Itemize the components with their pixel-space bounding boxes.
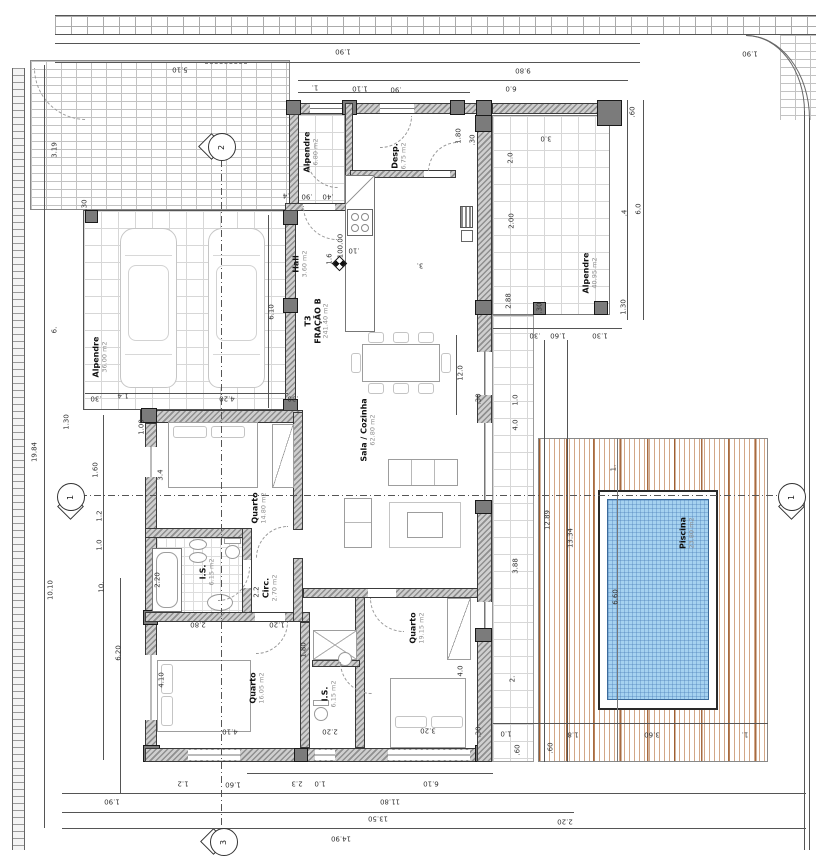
dimension-label: 1.00 (139, 419, 146, 435)
dimension-label: 1.0 (513, 394, 520, 405)
dimension-label: 6.0 (505, 85, 516, 92)
room-area: 2.70 m2 (271, 574, 279, 601)
dimension-label: .90 (301, 193, 312, 200)
dimension-label: 12.89 (545, 510, 552, 530)
dimension-label: .40 (322, 193, 333, 200)
room-label-quarto: Quarto19.15 m2 (408, 612, 425, 643)
dimension-label: 6.10 (269, 304, 276, 320)
dimension-label: 1.60 (225, 781, 241, 788)
dimension-label: 1.60 (550, 332, 566, 339)
dimension-label: 100.00 (338, 234, 345, 259)
section-marker-number: 2 (218, 144, 227, 149)
dimension-label: 1.20 (269, 621, 285, 628)
room-area: 6.80 m2 (312, 132, 320, 173)
room-label-sala-cozinha: Sala / Cozinha62.80 m2 (359, 398, 376, 461)
dimension-label: 6.60 (613, 589, 620, 605)
room-area: 6.15 m2 (330, 680, 338, 707)
room-area: 241.40 m2 (323, 298, 331, 344)
dimension-label: 10.10 (48, 580, 55, 600)
section-marker-number: 1 (788, 494, 797, 499)
dimension-label: .60 (515, 744, 522, 755)
dimension-label: 6.0 (636, 203, 643, 214)
dimension-label: .30 (287, 395, 298, 402)
dimension-label: 1.30 (592, 332, 608, 339)
room-label-hall: Hall3.60 m2 (291, 250, 308, 277)
dimension-label: .10 (348, 247, 359, 254)
room-label-i-s-: I.S.6.15 m2 (198, 558, 215, 585)
dimension-label: 1.90 (742, 50, 758, 57)
dimension-label: 2.00 (509, 213, 516, 229)
room-area: 36.00 m2 (101, 337, 109, 378)
marker-layer: 2311 (0, 0, 816, 856)
dimension-label: 6. (52, 327, 59, 334)
room-area: 40.95 m2 (591, 253, 599, 294)
floor-plan: 5.101.901.909.806.01.1.10.90.603.02.02.0… (0, 0, 816, 856)
dimension-label: 5.10 (172, 66, 188, 73)
dimension-label: 2.20 (322, 728, 338, 735)
dimension-label: .4 (283, 192, 290, 199)
dimension-label: .30 (82, 199, 89, 210)
room-name: T3 FRAÇÃO B (304, 298, 323, 344)
dimension-label: 1.2 (177, 780, 188, 787)
dimension-label: .90 (390, 86, 401, 93)
room-area: 62.80 m2 (369, 398, 377, 461)
room-area: 14.80 m2 (260, 492, 268, 523)
dimension-label: 4.20 (219, 395, 235, 402)
dimension-label: .4 (622, 210, 629, 217)
dimension-label: 1.80 (301, 642, 308, 658)
dimension-label: 4.10 (159, 672, 166, 688)
dimension-label: .30 (476, 726, 483, 737)
dimension-label: 1.2 (97, 510, 104, 521)
room-area: 6.15 m2 (208, 558, 216, 585)
section-marker: 1 (57, 483, 85, 511)
dimension-label: 1.80 (456, 128, 463, 144)
dimension-label: 2.0 (508, 152, 515, 163)
dimension-label: 11.80 (380, 798, 400, 805)
dimension-label: 3.20 (420, 727, 436, 734)
dimension-label: 6.10 (423, 780, 439, 787)
room-area: 19.15 m2 (418, 612, 426, 643)
dimension-label: .30 (90, 395, 101, 402)
dimension-label: 10. (99, 581, 106, 592)
dimension-label: 14.90 (331, 835, 351, 842)
dimension-label: 6.20 (116, 645, 123, 661)
room-area: 3.60 m2 (301, 250, 309, 277)
dimension-label: 1.30 (64, 414, 71, 430)
dimension-label: 1. (312, 84, 319, 91)
dimension-label: 2.2 (254, 586, 261, 597)
dimension-label: .60 (548, 742, 555, 753)
dimension-label: 2.20 (557, 818, 573, 825)
dimension-label: 1. (611, 465, 618, 472)
dimension-label: 1.4 (117, 392, 128, 399)
dimension-label: 1.90 (335, 48, 351, 55)
dimension-label: 1.0 (97, 539, 104, 550)
dimension-label: 1.8 (567, 731, 578, 738)
room-label-quarto: Quarto16.05 m2 (248, 672, 265, 703)
dimension-label: 4.0 (513, 419, 520, 430)
section-marker: 1 (778, 483, 806, 511)
dimension-label: 1.0 (314, 780, 325, 787)
dimension-label: 2.80 (190, 621, 206, 628)
dimension-label: 13.34 (568, 528, 575, 548)
section-marker-number: 1 (67, 494, 76, 499)
dimension-label: 3. (417, 262, 424, 269)
dimension-label: .30 (476, 393, 483, 404)
dimension-label: .60 (630, 106, 637, 117)
room-label-circ-: Circ.2.70 m2 (261, 574, 278, 601)
room-area: 23.80 m2 (688, 517, 696, 549)
dimension-label: .30 (529, 332, 540, 339)
dimension-label: 3.0 (540, 135, 551, 142)
dimension-label: 2.88 (506, 293, 513, 309)
dimension-label: 3.60 (644, 731, 660, 738)
dimension-label: 1.30 (621, 299, 628, 315)
section-marker: 2 (208, 133, 236, 161)
room-label-piscina: Piscina23.80 m2 (678, 517, 695, 549)
dimension-label: 4.10 (222, 728, 238, 735)
dimension-label: 2.3 (291, 780, 302, 787)
dimension-label: 13.50 (368, 815, 388, 822)
dimension-label: 9.80 (515, 67, 531, 74)
dimension-label: 3.4 (158, 469, 165, 480)
dimension-label: 1.0 (500, 730, 511, 737)
room-label-alpendre: Alpendre36.00 m2 (91, 337, 108, 378)
dimension-label: 3.88 (513, 558, 520, 574)
room-area: 6.75 m2 (400, 142, 408, 169)
dimension-label: 1.90 (104, 798, 120, 805)
room-label-alpendre: Alpendre6.80 m2 (302, 132, 319, 173)
room-label-quarto: Quarto14.80 m2 (250, 492, 267, 523)
dimension-label: 2.20 (155, 572, 162, 588)
room-label-t3-fra-o-b: T3 FRAÇÃO B241.40 m2 (304, 298, 331, 344)
dimension-label: 1.10 (352, 85, 368, 92)
room-area: 16.05 m2 (258, 672, 266, 703)
dimension-label: 12.0 (458, 365, 465, 381)
dimension-label: 19.84 (32, 442, 39, 462)
section-marker-number: 3 (220, 839, 229, 844)
dimension-label: 4.0 (458, 665, 465, 676)
dimension-label: .30 (537, 302, 544, 313)
dimension-label: .30 (470, 134, 477, 145)
dimension-label: 2. (510, 676, 517, 683)
room-label-desp-: Desp.6.75 m2 (390, 142, 407, 169)
dimension-label: 3.19 (52, 142, 59, 158)
room-label-i-s-: I.S.6.15 m2 (320, 680, 337, 707)
section-marker: 3 (210, 828, 238, 856)
dimension-label: 1. (742, 731, 749, 738)
room-label-alpendre: Alpendre40.95 m2 (581, 253, 598, 294)
dimension-label: 1.60 (93, 462, 100, 478)
